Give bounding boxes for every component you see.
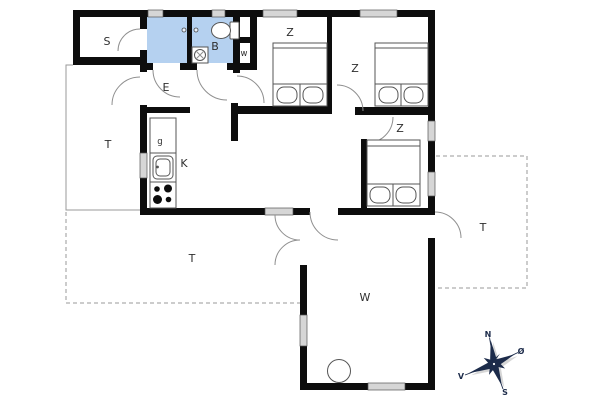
kitchen-counter — [150, 118, 176, 208]
room-label-terrace-bottom: T — [188, 252, 196, 265]
window — [140, 153, 147, 178]
room-label-kitchen: K — [180, 157, 188, 170]
bed-icon — [375, 43, 428, 106]
knob-icon — [194, 28, 198, 32]
window — [428, 172, 435, 196]
compass-label-east: Ø — [518, 346, 525, 356]
room-label-bedroom-1: Z — [286, 26, 294, 39]
floor-plan-page: S B w E T g K Z Z Z W T T — [0, 0, 600, 400]
window — [300, 315, 307, 346]
window — [265, 208, 293, 215]
window — [148, 10, 163, 17]
room-label-fridge: g — [157, 137, 162, 147]
room-label-bedroom-2: Z — [351, 62, 359, 75]
room-label-bedroom-3: Z — [396, 122, 404, 135]
window — [263, 10, 297, 17]
room-label-terrace-right: T — [479, 221, 487, 234]
compass-label-south: S — [502, 388, 508, 397]
window — [368, 383, 405, 390]
compass-label-west: V — [458, 372, 465, 381]
shower-icon — [192, 47, 208, 63]
floor-plan-svg: S B w E T g K Z Z Z W T T — [0, 0, 600, 400]
bed-icon — [273, 43, 327, 106]
toilet-icon — [212, 22, 240, 39]
utility-room-fill — [147, 17, 187, 63]
compass-label-north: N — [485, 330, 492, 339]
window — [360, 10, 397, 17]
window — [428, 121, 435, 141]
room-label-entrance: E — [163, 81, 170, 94]
room-label-wc: w — [241, 49, 248, 59]
room-label-storage: S — [104, 35, 111, 48]
table-icon — [328, 360, 351, 383]
room-label-bathroom: B — [211, 40, 219, 53]
knob-icon — [182, 28, 186, 32]
window — [212, 10, 225, 17]
bed-icon — [367, 140, 420, 206]
room-label-terrace-left: T — [104, 138, 112, 151]
sink-icon — [153, 156, 173, 179]
room-label-living: W — [360, 291, 371, 304]
